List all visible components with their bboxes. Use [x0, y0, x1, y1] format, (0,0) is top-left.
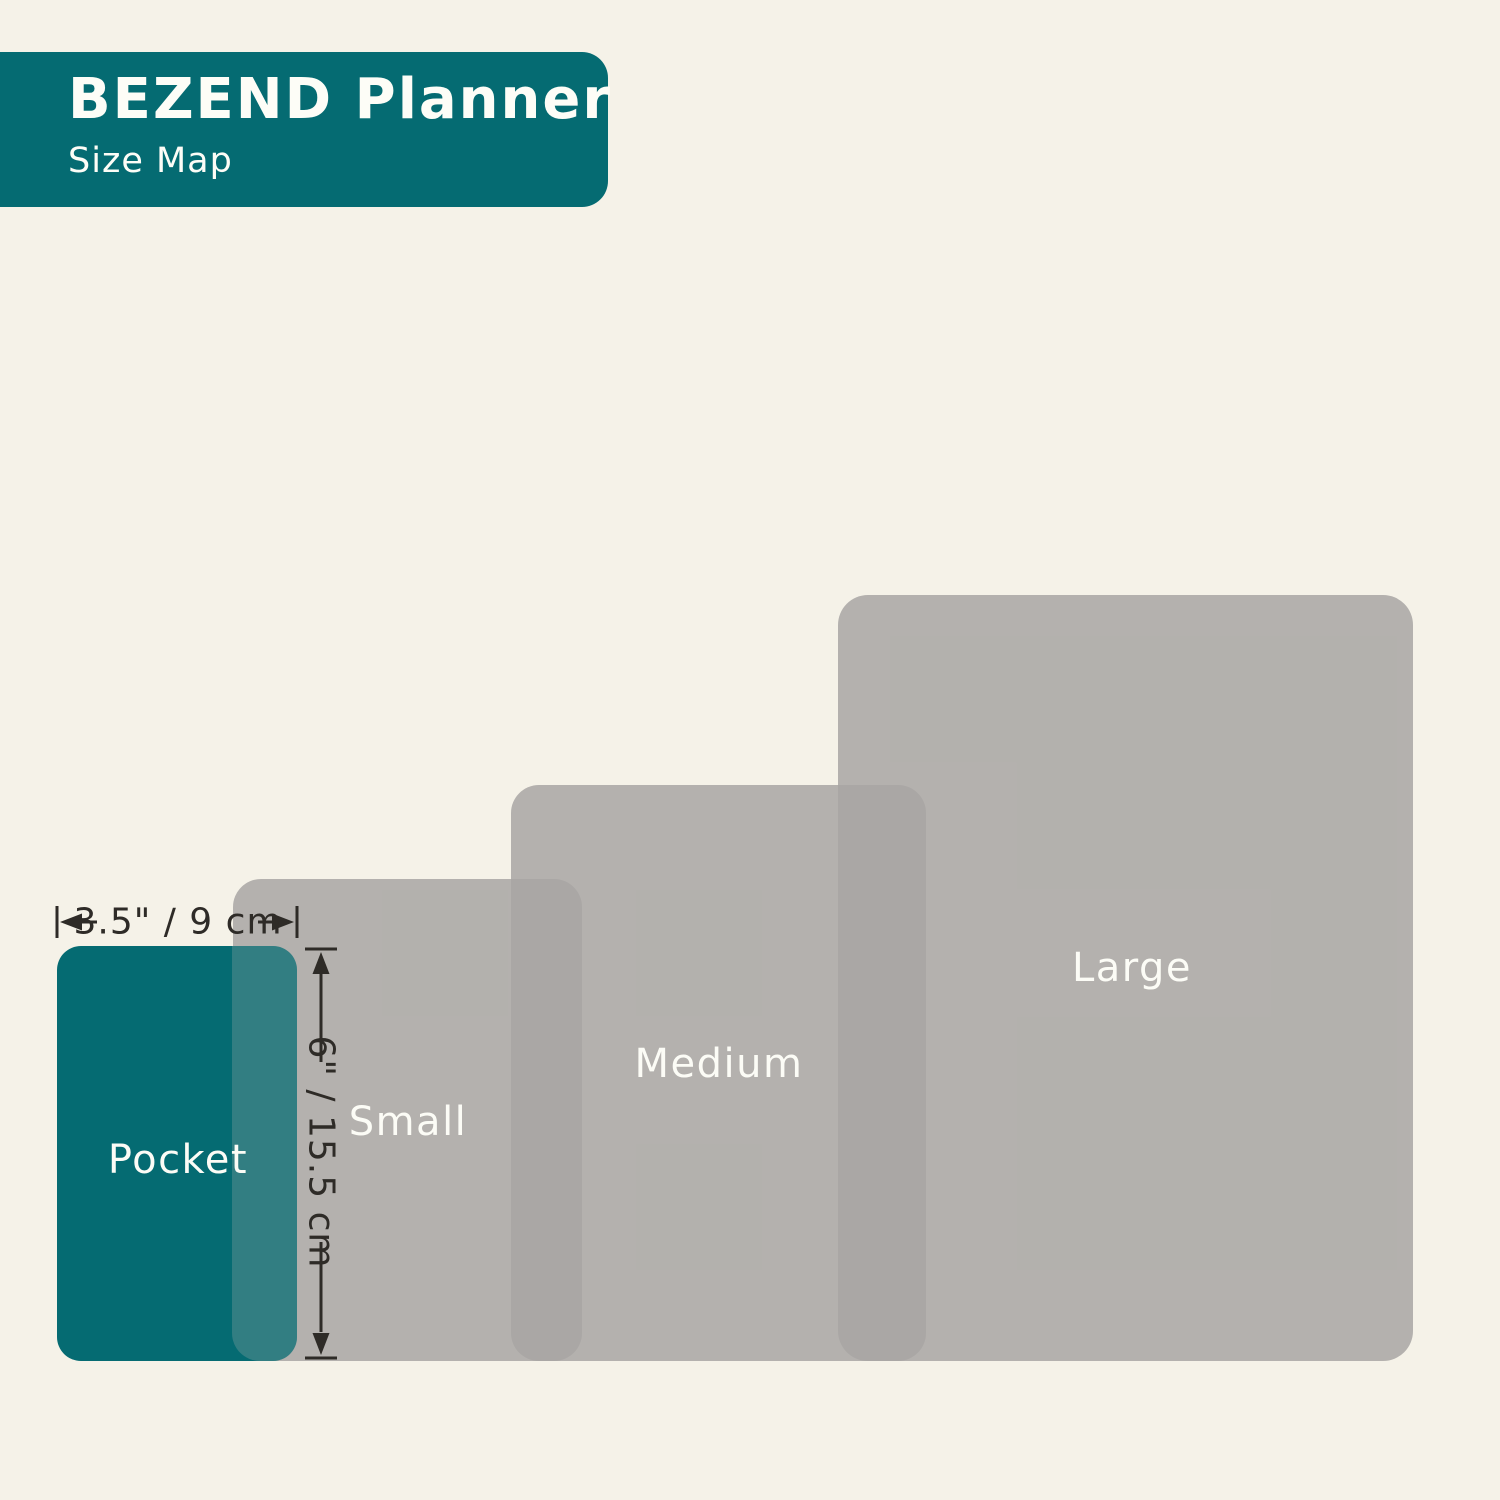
size-map-infographic: BEZEND Planner Size Map Pocket Small Med…	[0, 0, 1500, 1500]
dimension-lines	[0, 0, 1500, 1500]
height-dim-up-arrow-icon	[313, 952, 330, 974]
width-dimension-label: 3.5" / 9 cm	[73, 902, 282, 943]
height-dim-down-arrow-icon	[313, 1333, 330, 1355]
height-dimension-label: 6" / 15.5 cm	[301, 1036, 342, 1269]
